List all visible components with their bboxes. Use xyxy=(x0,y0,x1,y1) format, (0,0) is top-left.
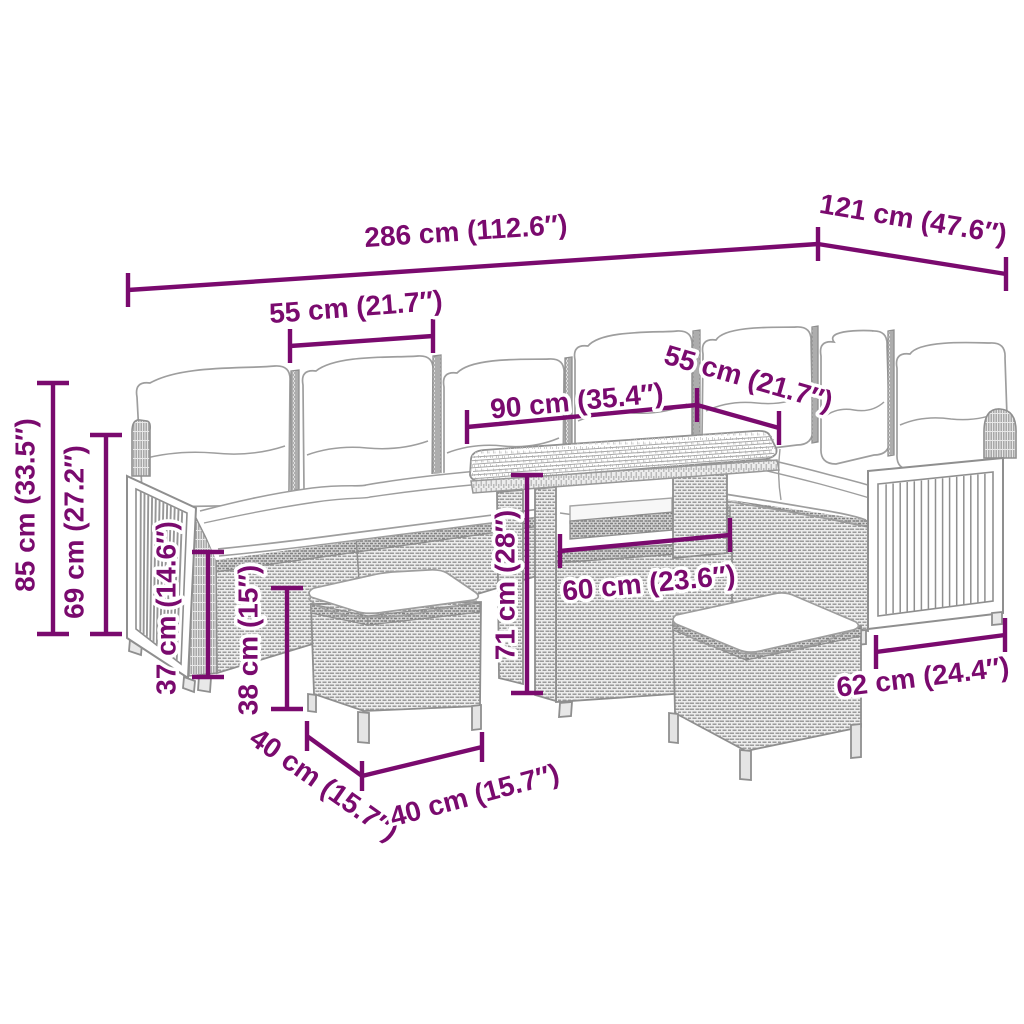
svg-text:286 cm (112.6″): 286 cm (112.6″) xyxy=(363,209,568,253)
svg-text:85 cm (33.5″): 85 cm (33.5″) xyxy=(9,418,40,592)
svg-text:40 cm (15.7″): 40 cm (15.7″) xyxy=(244,722,404,847)
svg-text:121 cm (47.6″): 121 cm (47.6″) xyxy=(817,188,1009,250)
svg-text:69 cm (27.2″): 69 cm (27.2″) xyxy=(58,445,89,619)
svg-text:40 cm (15.7″): 40 cm (15.7″) xyxy=(387,758,563,833)
svg-text:37 cm (14.6″): 37 cm (14.6″) xyxy=(150,521,181,695)
svg-text:38 cm (15″): 38 cm (15″) xyxy=(232,565,263,715)
svg-text:71 cm (28″): 71 cm (28″) xyxy=(489,510,520,660)
svg-text:55 cm (21.7″): 55 cm (21.7″) xyxy=(268,285,444,330)
